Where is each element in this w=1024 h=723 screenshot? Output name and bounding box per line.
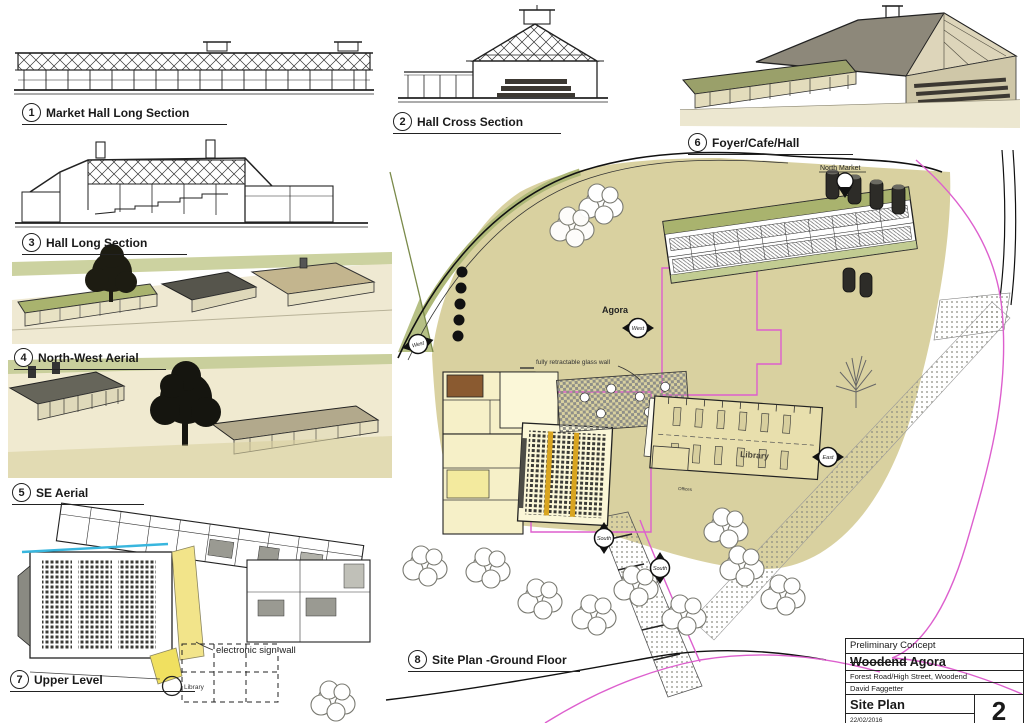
svg-text:East: East (822, 455, 833, 461)
svg-text:South: South (653, 566, 667, 572)
se-aerial-drawing (8, 354, 392, 478)
figure-title: SE Aerial (36, 486, 88, 500)
figure-label-7: 7 Upper Level (10, 670, 195, 692)
library-label: Library (740, 449, 770, 461)
sheet-title: Site Plan (846, 695, 974, 713)
figure-title: Hall Cross Section (417, 115, 523, 129)
figure-number-circle: 4 (14, 348, 33, 367)
title-block-project: WoodendAgora (846, 653, 1023, 670)
figure-number-circle: 2 (393, 112, 412, 131)
title-block: Preliminary Concept WoodendAgora Forest … (845, 638, 1024, 723)
figure-label-4: 4 North-West Aerial (14, 348, 166, 370)
sign-wall-annotation: electronic sign wall (216, 645, 296, 656)
hall-cross-section-drawing (398, 5, 608, 102)
figure-title: Upper Level (34, 673, 103, 687)
sheet-number: 2 (974, 695, 1023, 723)
figure-title: Site Plan -Ground Floor (432, 653, 567, 667)
figure-number-circle: 6 (688, 133, 707, 152)
hall-long-section-drawing (15, 140, 368, 227)
figure-title: Hall Long Section (46, 236, 147, 250)
figure-number-circle: 8 (408, 650, 427, 669)
svg-text:West: West (632, 326, 645, 332)
north-west-aerial-drawing (12, 244, 392, 344)
title-block-status: Preliminary Concept (846, 639, 1023, 653)
figure-label-8: 8 Site Plan -Ground Floor (408, 650, 580, 672)
figure-number-circle: 1 (22, 103, 41, 122)
market-hall-long-section-drawing (14, 42, 374, 94)
figure-title: North-West Aerial (38, 351, 139, 365)
foyer-cafe-hall-drawing (680, 6, 1020, 128)
glass-wall-annotation: fully retractable glass wall (536, 359, 611, 366)
figure-number-circle: 3 (22, 233, 41, 252)
figure-number-circle: 7 (10, 670, 29, 689)
project-name: Agora (910, 655, 946, 669)
figure-label-5: 5 SE Aerial (12, 483, 144, 505)
title-block-address: Forest Road/High Street, Woodend (846, 670, 1023, 682)
agora-label: Agora (602, 305, 629, 315)
figure-title: Market Hall Long Section (46, 106, 189, 120)
title-block-author: David Faggetter (846, 682, 1023, 694)
drawing-sheet: Agora North Market West West East South … (0, 0, 1024, 723)
project-name-struck: Woodend (850, 655, 907, 669)
figure-title: Foyer/Cafe/Hall (712, 136, 799, 150)
offices-label: Offices (678, 486, 693, 492)
figure-label-3: 3 Hall Long Section (22, 233, 187, 255)
svg-text:South: South (597, 536, 611, 542)
sheet-date: 22/02/2016 (846, 713, 974, 723)
figure-label-2: 2 Hall Cross Section (393, 112, 561, 134)
figure-label-1: 1 Market Hall Long Section (22, 103, 227, 125)
figure-number-circle: 5 (12, 483, 31, 502)
figure-label-6: 6 Foyer/Cafe/Hall (688, 133, 853, 155)
north-market-label: North Market (820, 165, 861, 172)
